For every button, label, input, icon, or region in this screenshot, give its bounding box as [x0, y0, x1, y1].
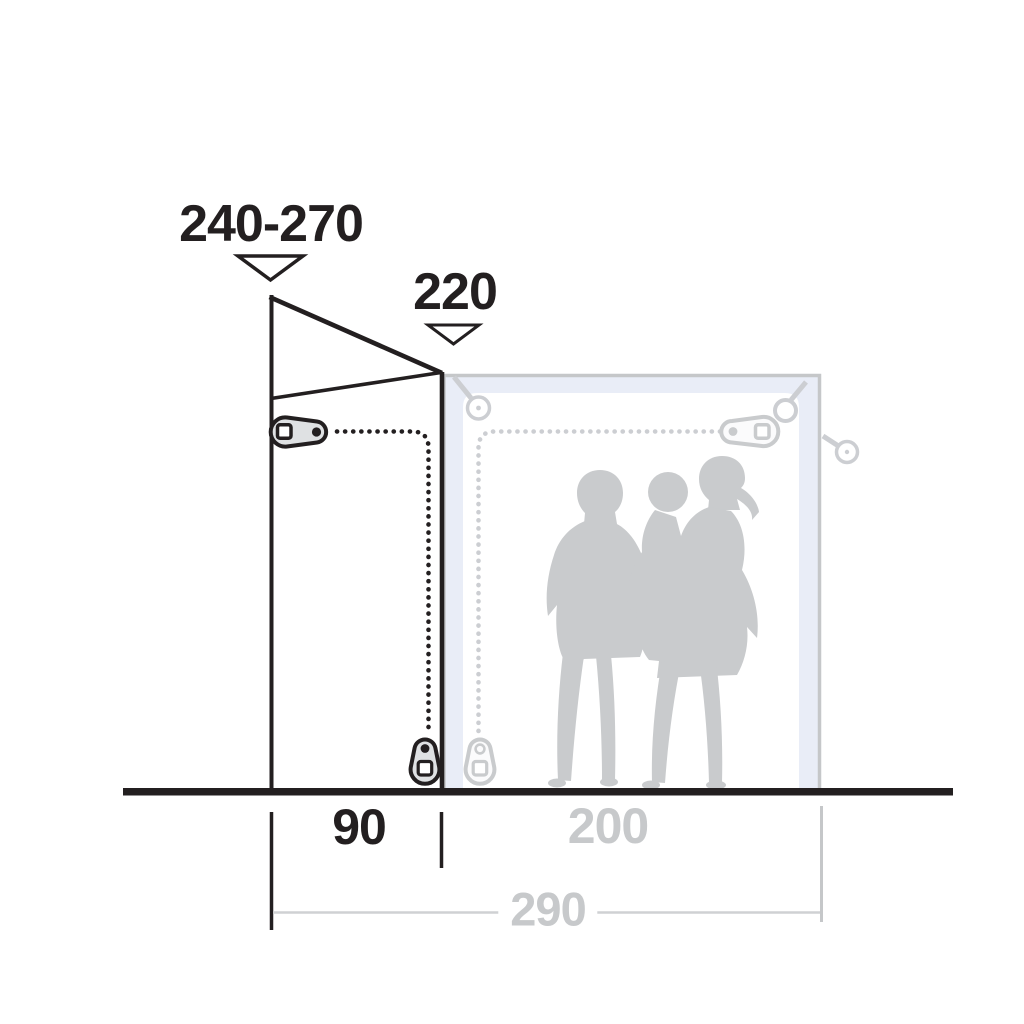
zipper-track — [337, 432, 429, 730]
guy-rope-peg-icon — [823, 436, 858, 463]
zipper-pull-icon — [466, 739, 495, 783]
down-arrow-icon — [238, 256, 303, 280]
awning-canopy-inner-line — [271, 373, 441, 399]
down-arrow-icon — [428, 325, 479, 344]
awning-zipper — [271, 417, 440, 783]
awning-dimension-diagram: 240-270 220 90 200 290 — [0, 0, 1024, 1024]
label-front-depth: 90 — [332, 802, 386, 852]
label-front-height: 220 — [413, 266, 497, 318]
zipper-pull-icon — [721, 417, 778, 446]
label-peak-height-range: 240-270 — [179, 198, 363, 250]
label-total-depth: 290 — [498, 886, 597, 933]
zipper-pull-icon — [271, 417, 326, 446]
awning-outline — [270, 295, 443, 791]
ground-line — [123, 788, 953, 796]
zipper-pull-icon — [411, 739, 440, 783]
label-rear-depth: 200 — [568, 801, 648, 851]
diagram-artwork — [0, 0, 1024, 1024]
